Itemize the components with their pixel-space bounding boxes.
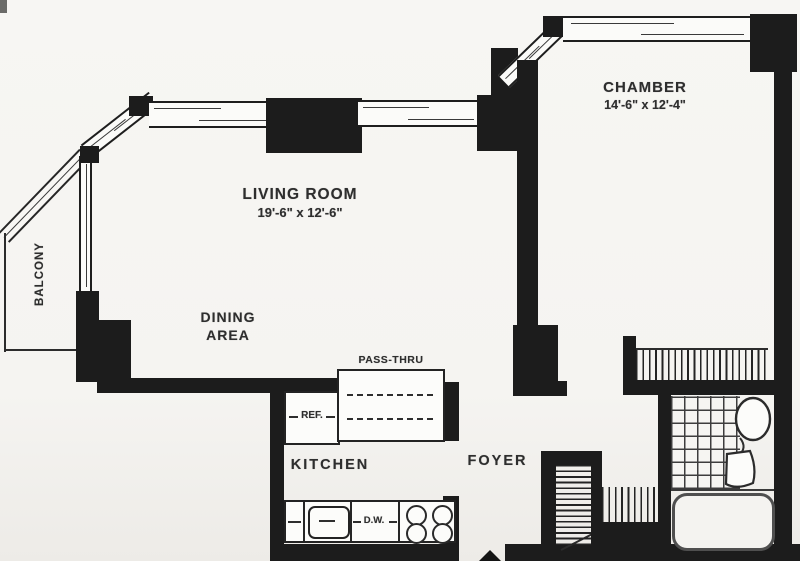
living-room-label: LIVING ROOM: [200, 186, 400, 204]
foyer-closet-a-hatch: [556, 465, 591, 545]
refrigerator: REF.: [284, 391, 340, 445]
foyer-closet-b-hatch: [602, 487, 658, 522]
scan-artifact: [0, 0, 7, 13]
pass-thru-counter: [337, 369, 445, 442]
kitchen-sink: [308, 506, 350, 539]
right-exterior-wall: [774, 60, 792, 548]
window-joint-block: [80, 146, 99, 163]
bottom-wall-left: [270, 544, 459, 561]
balcony-left-edge: [4, 233, 6, 352]
stove-burner: [432, 523, 453, 544]
refrigerator-label: REF.: [286, 410, 338, 421]
toilet: [736, 398, 770, 440]
foyer-label: FOYER: [455, 453, 540, 469]
living-room-window-left: [149, 101, 271, 128]
floor-plan: BALCONY REF. PASS-THRU: [0, 0, 800, 561]
chamber-label: CHAMBER: [560, 79, 730, 96]
kitchen-counter: D.W.: [284, 500, 456, 543]
window-pier: [266, 98, 362, 153]
bathtub: [672, 493, 775, 551]
kitchen-label: KITCHEN: [270, 457, 390, 473]
foyer-closet-left-wall: [541, 451, 556, 548]
pass-thru-label: PASS-THRU: [337, 354, 445, 366]
entry-door-marker: [479, 550, 501, 561]
chamber-closet-hatch: [636, 350, 767, 382]
balcony-bottom-edge: [4, 349, 79, 351]
living-room-window-right: [358, 100, 479, 127]
chamber-dims: 14'-6" x 12'-4": [560, 98, 730, 112]
dining-left-wall-step: [76, 320, 131, 382]
living-chamber-wall-foot: [513, 381, 567, 396]
living-chamber-wall: [517, 60, 538, 327]
living-room-dims: 19'-6" x 12'-6": [200, 205, 400, 220]
dining-area-label-line1: DINING: [168, 309, 288, 325]
chamber-closet-bottom-wall: [623, 380, 778, 395]
pedestal-sink: [726, 451, 754, 487]
chamber-top-window: [563, 16, 752, 42]
dining-area-label-line2: AREA: [168, 327, 288, 343]
balcony-door-window: [79, 156, 92, 295]
balcony-rail-window: [0, 149, 90, 243]
balcony-label: BALCONY: [34, 242, 46, 306]
foyer-closet-mid-wall: [591, 451, 602, 548]
bathroom-fixtures: [668, 394, 776, 490]
living-chamber-wall-base: [513, 325, 558, 383]
stove-burner: [406, 523, 427, 544]
